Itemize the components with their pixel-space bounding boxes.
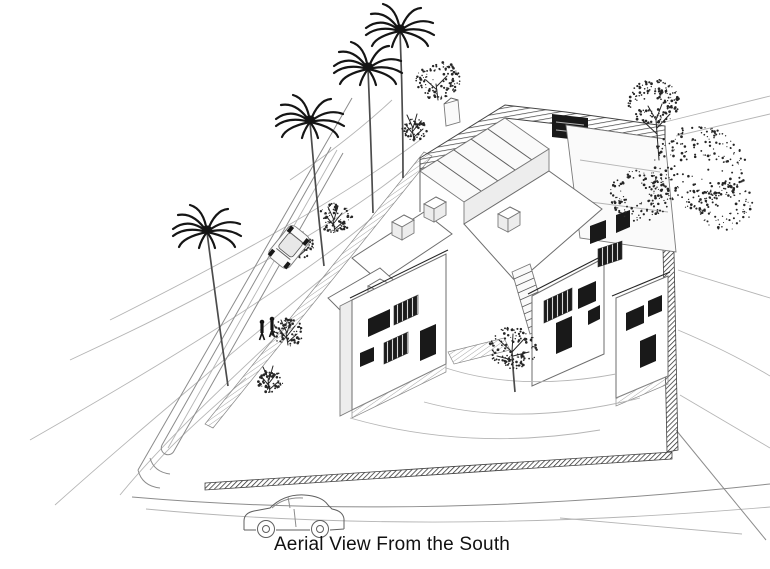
house-b (528, 254, 606, 386)
south-boundary-wall (205, 452, 672, 490)
east-ground-lines (665, 96, 770, 448)
east-wing-roof (566, 125, 676, 252)
courtyard-tree (489, 327, 538, 392)
pedestrians (260, 317, 275, 340)
roof-tower (444, 100, 460, 126)
palm-tree (173, 205, 241, 386)
car-on-avenue (266, 223, 311, 270)
housing-complex (328, 98, 676, 439)
garden-tree (415, 61, 460, 100)
sketch-page: Aerial View From the South (0, 0, 770, 569)
street-tree (257, 366, 283, 393)
garden-tree (401, 114, 427, 142)
large-canopy-tree (698, 182, 753, 231)
palm-tree (334, 42, 402, 213)
caption: Aerial View From the South (7, 534, 770, 556)
parked-sedan (244, 495, 344, 538)
sketch-canvas (0, 0, 770, 569)
